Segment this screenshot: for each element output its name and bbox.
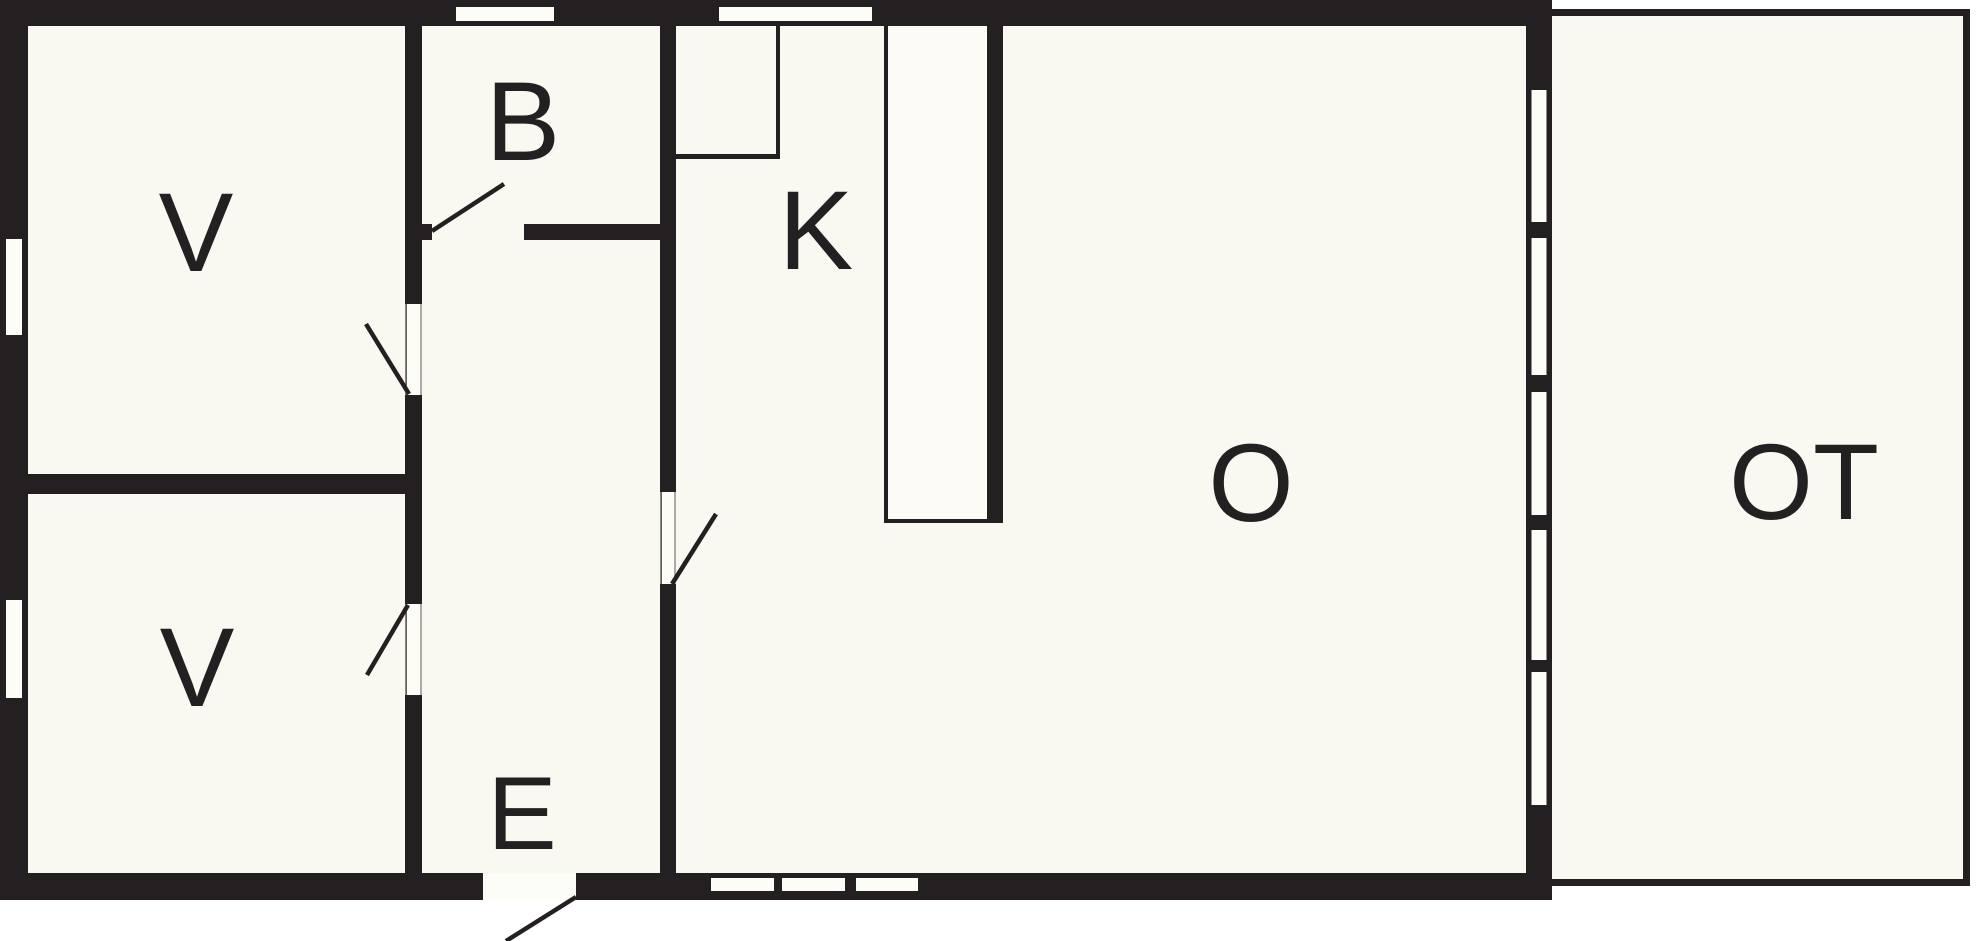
svg-text:B: B [486,59,561,184]
svg-text:V: V [159,170,234,295]
svg-text:E: E [487,756,556,872]
svg-text:V: V [160,605,235,730]
svg-text:O: O [1208,422,1294,545]
svg-text:K: K [779,168,854,293]
svg-text:OT: OT [1729,421,1879,542]
